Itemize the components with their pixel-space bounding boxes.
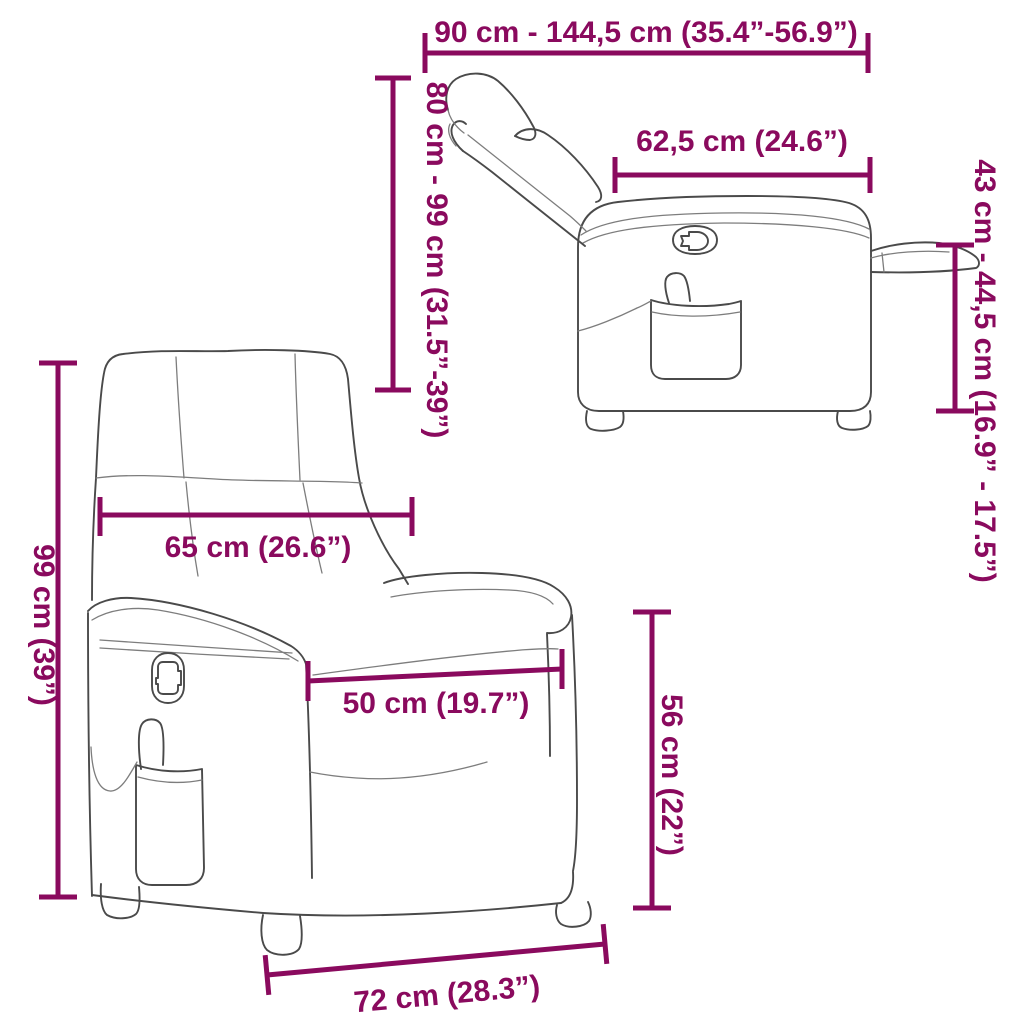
dim-label-seat-height: 56 cm (22”) xyxy=(656,694,686,856)
power-cable xyxy=(578,301,651,331)
chair-foot xyxy=(837,411,871,430)
recline-lever-icon xyxy=(681,232,708,250)
base-bottom-edge xyxy=(92,895,561,916)
backrest-seam-left-upper xyxy=(176,357,184,478)
dim-label-recline-height: 80 cm - 99 cm (31.5”-39”) xyxy=(421,82,451,439)
dim-label-seat-width: 50 cm (19.7”) xyxy=(343,689,530,719)
chair-foot xyxy=(101,884,140,918)
armrest-accent-line-2 xyxy=(100,648,289,659)
dim-label-seat-back-depth: 62,5 cm (24.6”) xyxy=(636,127,848,157)
dim-label-total-depth: 90 cm - 144,5 cm (35.4”-56.9”) xyxy=(434,18,858,48)
reclined-backrest-tip xyxy=(451,121,466,151)
side-pocket-hem xyxy=(138,777,202,782)
right-armrest-inner-edge xyxy=(547,634,550,756)
side-pocket xyxy=(136,765,204,885)
dim-tick xyxy=(265,955,269,995)
right-armrest-outer-edge xyxy=(572,615,577,871)
dim-line-base-width xyxy=(267,944,605,975)
dimension-diagram: 90 cm - 144,5 cm (35.4”-56.9”) 80 cm - 9… xyxy=(0,0,1024,1024)
side-pocket-hem xyxy=(652,312,740,316)
remote-control xyxy=(665,273,690,303)
backrest-seam-right-upper xyxy=(295,354,300,480)
reclined-backrest-frame xyxy=(468,135,586,231)
right-armrest-top xyxy=(384,573,571,633)
power-cable xyxy=(91,747,137,791)
recliner-body-top-seam-2 xyxy=(583,223,869,243)
chair-foot xyxy=(586,411,624,431)
dimension-lines xyxy=(39,33,974,995)
footrest-bracket xyxy=(882,253,884,272)
recline-lever-icon xyxy=(156,662,181,694)
upright-chair-front-view xyxy=(88,350,591,955)
dim-tick xyxy=(603,924,607,964)
dim-label-footrest-height: 43 cm - 44,5 cm (16.9” - 17.5”) xyxy=(969,159,999,583)
right-armrest-top-seam xyxy=(391,589,553,604)
side-pocket xyxy=(651,300,741,379)
remote-control xyxy=(139,719,164,769)
seat-front-edge xyxy=(310,762,487,779)
recliner-body-top-seam xyxy=(581,213,869,235)
chair-foot xyxy=(556,902,591,927)
dim-label-backrest-width: 65 cm (26.6”) xyxy=(165,533,352,563)
chair-foot xyxy=(261,915,301,955)
base-right-edge xyxy=(561,872,573,903)
reclined-backrest-underside xyxy=(463,151,585,246)
dim-label-total-height: 99 cm (39”) xyxy=(28,544,58,706)
line-art-canvas xyxy=(0,0,1024,1024)
headrest-seam xyxy=(96,476,362,483)
